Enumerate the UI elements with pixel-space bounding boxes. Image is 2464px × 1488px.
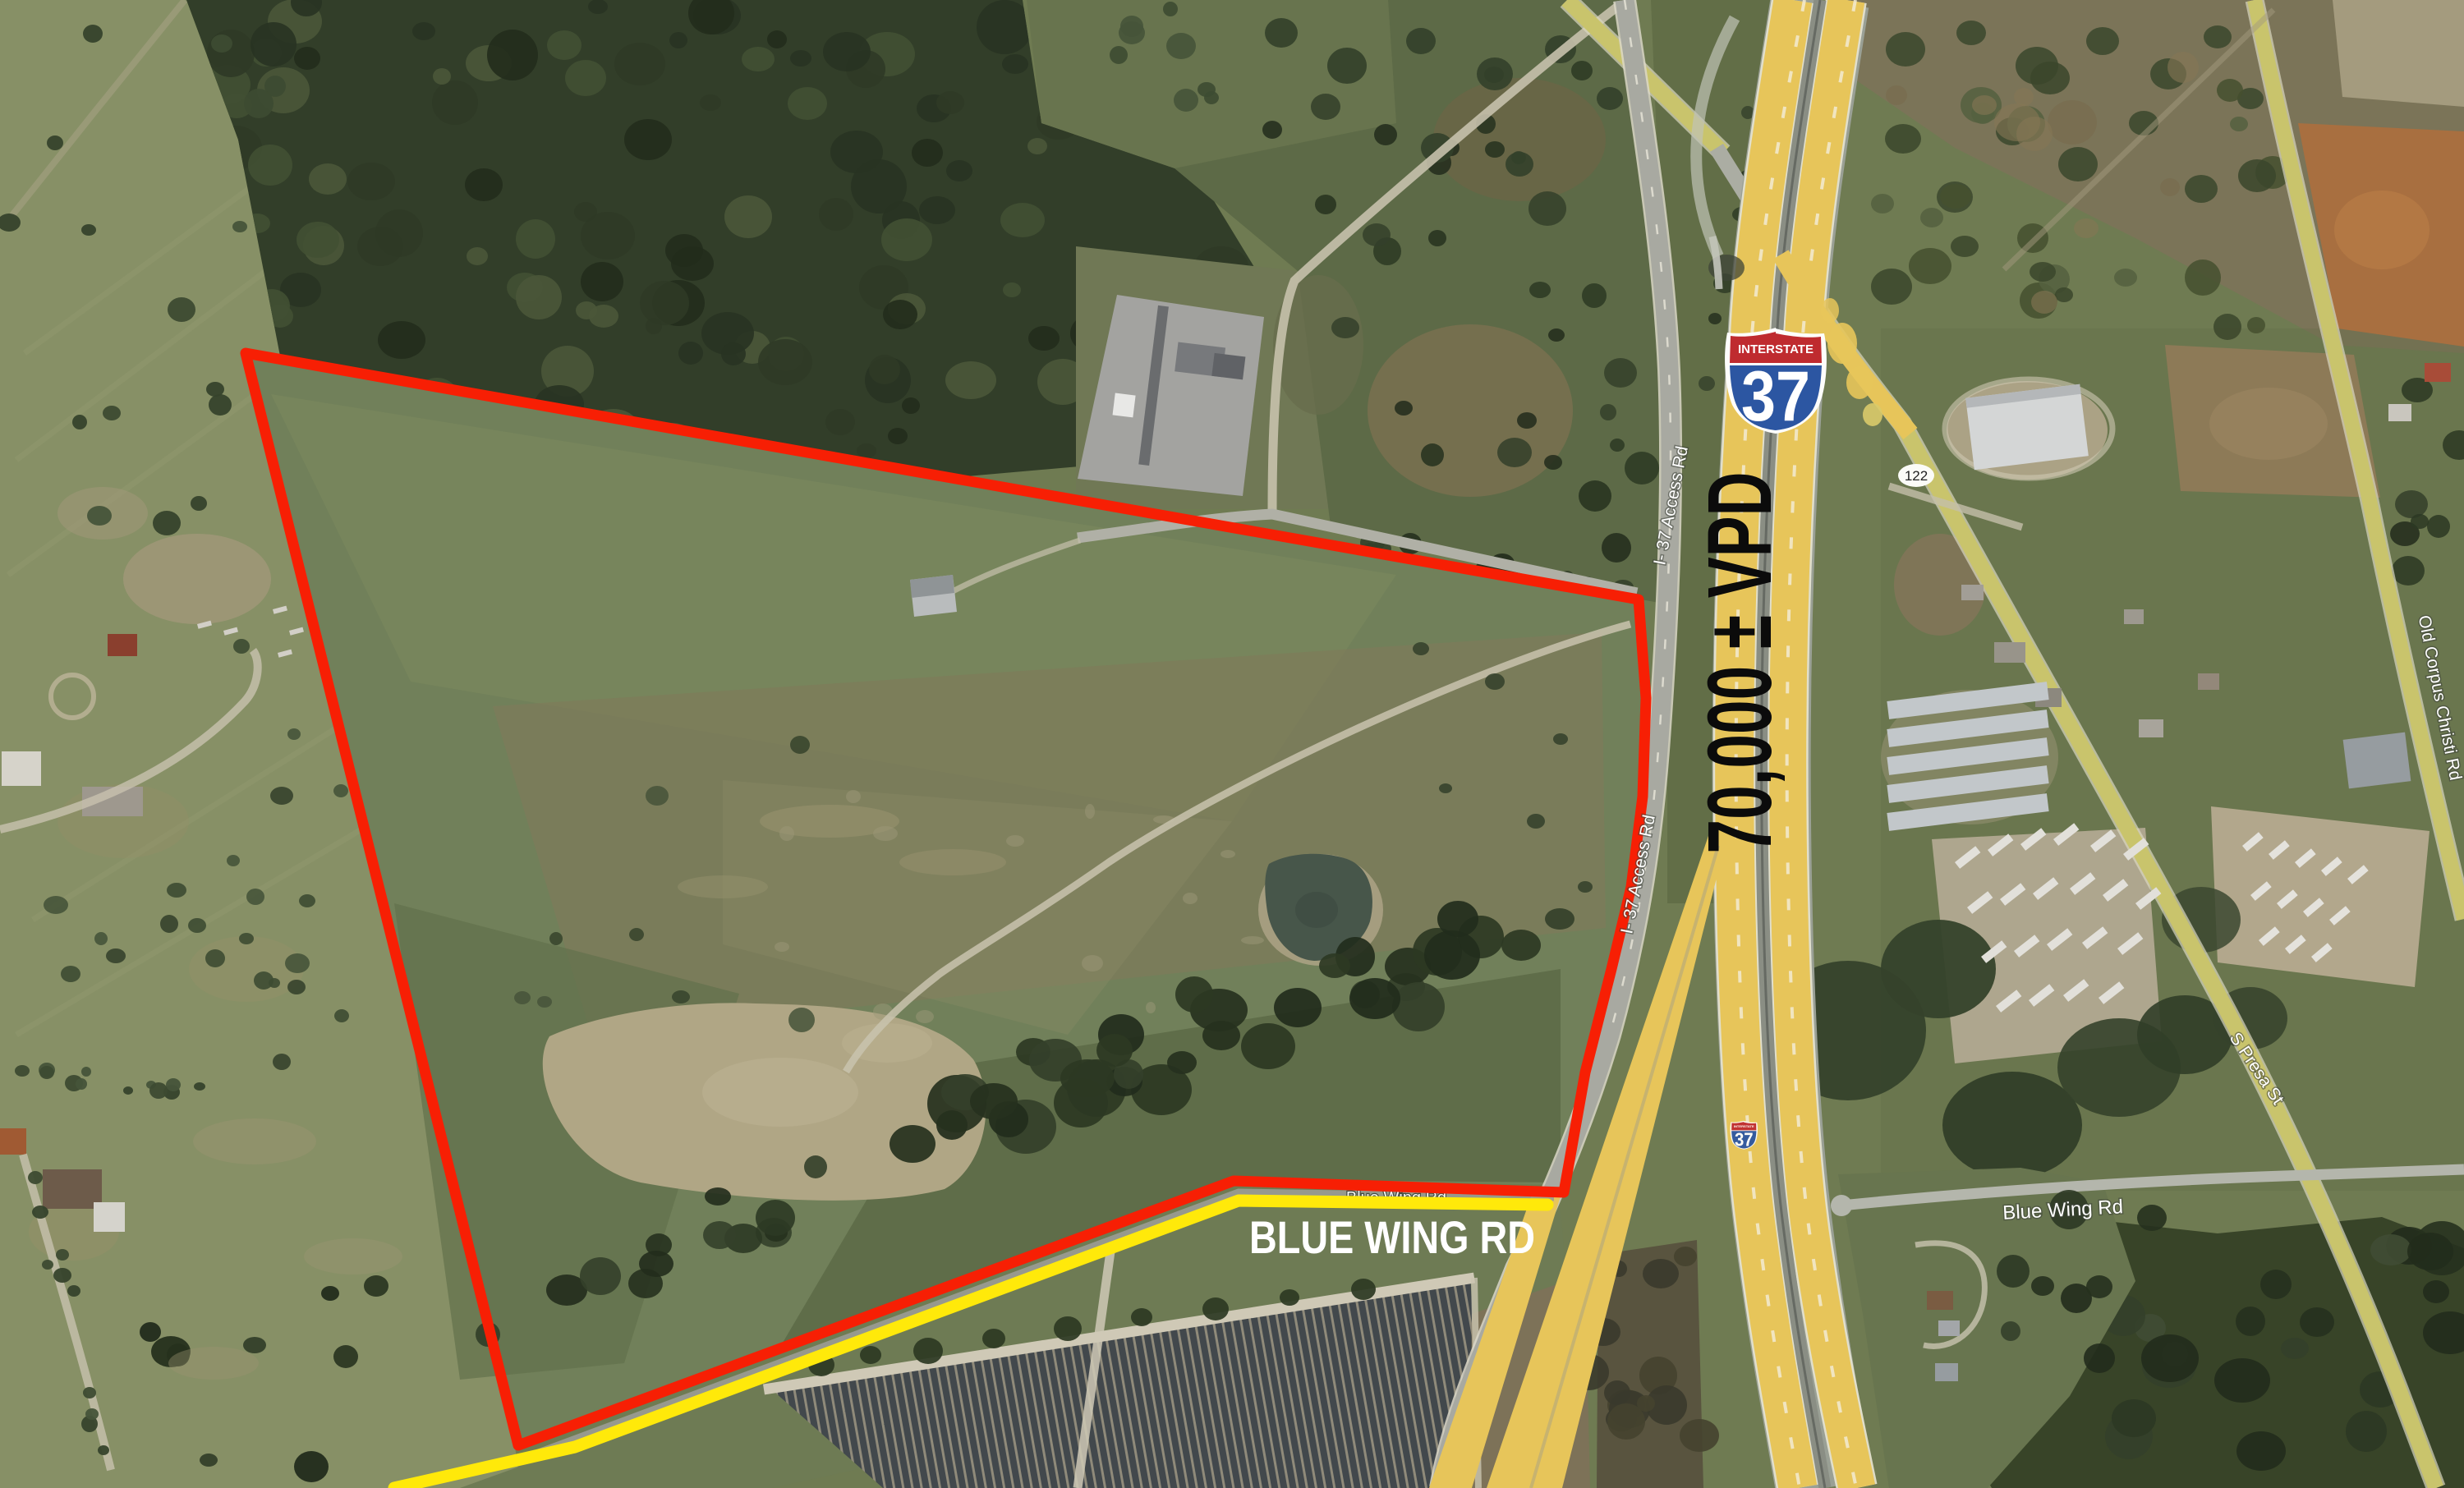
svg-text:70,000 ± VPD: 70,000 ± VPD [1689,472,1791,854]
svg-text:BLUE WING RD: BLUE WING RD [1249,1211,1535,1263]
svg-text:122: 122 [1905,468,1928,484]
